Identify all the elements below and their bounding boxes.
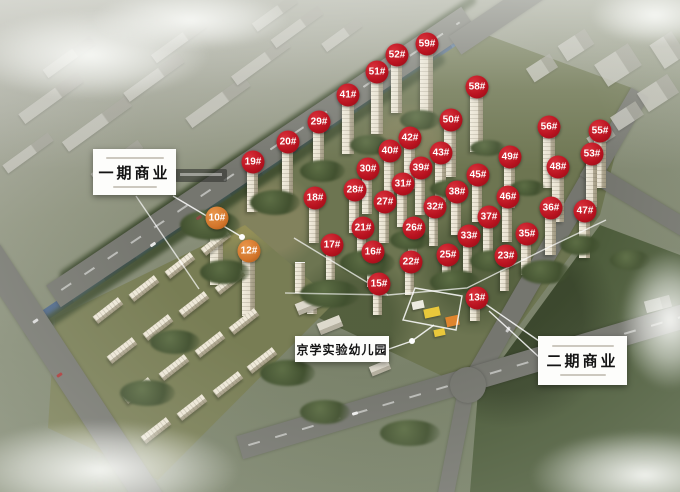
building-marker-23[interactable]: 23# bbox=[495, 245, 518, 268]
building-marker-43[interactable]: 43# bbox=[430, 142, 453, 165]
building-marker-15[interactable]: 15# bbox=[368, 273, 391, 296]
building-marker-25[interactable]: 25# bbox=[437, 244, 460, 267]
callout-label: 二期商业 bbox=[546, 350, 618, 371]
building-marker-21[interactable]: 21# bbox=[352, 217, 375, 240]
callout-phase2-commercial[interactable]: 二期商业 bbox=[538, 336, 627, 385]
callout-label: 京学实验幼儿园 bbox=[296, 341, 387, 358]
building-marker-22[interactable]: 22# bbox=[400, 251, 423, 274]
building-marker-46[interactable]: 46# bbox=[497, 186, 520, 209]
building-marker-17[interactable]: 17# bbox=[321, 234, 344, 257]
building-marker-12[interactable]: 12# bbox=[238, 240, 261, 263]
building-marker-58[interactable]: 58# bbox=[466, 76, 489, 99]
building-marker-18[interactable]: 18# bbox=[304, 187, 327, 210]
building-marker-45[interactable]: 45# bbox=[467, 164, 490, 187]
callout-deco-line bbox=[106, 157, 164, 159]
building-marker-16[interactable]: 16# bbox=[362, 241, 385, 264]
building-marker-28[interactable]: 28# bbox=[344, 179, 367, 202]
building-marker-49[interactable]: 49# bbox=[499, 146, 522, 169]
building-marker-26[interactable]: 26# bbox=[403, 217, 426, 240]
callout-deco-line bbox=[113, 186, 157, 188]
building-marker-38[interactable]: 38# bbox=[446, 181, 469, 204]
building-marker-29[interactable]: 29# bbox=[308, 111, 331, 134]
building-marker-53[interactable]: 53# bbox=[581, 143, 604, 166]
callout-deco-line bbox=[560, 374, 606, 376]
callout-deco-line bbox=[552, 345, 614, 347]
building-marker-41[interactable]: 41# bbox=[337, 84, 360, 107]
building-marker-59[interactable]: 59# bbox=[416, 33, 439, 56]
building-marker-39[interactable]: 39# bbox=[410, 157, 433, 180]
building-marker-40[interactable]: 40# bbox=[379, 140, 402, 163]
building-marker-35[interactable]: 35# bbox=[516, 223, 539, 246]
building-marker-13[interactable]: 13# bbox=[466, 287, 489, 310]
building-marker-19[interactable]: 19# bbox=[242, 151, 265, 174]
building-marker-27[interactable]: 27# bbox=[374, 191, 397, 214]
building-marker-55[interactable]: 55# bbox=[589, 120, 612, 143]
callout-label: 一期商业 bbox=[98, 162, 170, 183]
building-marker-56[interactable]: 56# bbox=[538, 116, 561, 139]
building-marker-10[interactable]: 10# bbox=[206, 207, 229, 230]
building-marker-20[interactable]: 20# bbox=[277, 131, 300, 154]
callout-phase1-commercial[interactable]: 一期商业 bbox=[93, 149, 176, 195]
building-marker-32[interactable]: 32# bbox=[424, 196, 447, 219]
aerial-masterplan-image: 10#12#13#15#16#17#18#19#20#21#22#23#25#2… bbox=[0, 0, 680, 492]
building-marker-42[interactable]: 42# bbox=[399, 127, 422, 150]
building-marker-33[interactable]: 33# bbox=[458, 225, 481, 248]
building-marker-52[interactable]: 52# bbox=[386, 44, 409, 67]
building-marker-37[interactable]: 37# bbox=[478, 206, 501, 229]
building-marker-51[interactable]: 51# bbox=[366, 61, 389, 84]
building-marker-47[interactable]: 47# bbox=[574, 200, 597, 223]
building-marker-31[interactable]: 31# bbox=[392, 173, 415, 196]
building-markers-layer: 10#12#13#15#16#17#18#19#20#21#22#23#25#2… bbox=[0, 0, 680, 492]
building-marker-30[interactable]: 30# bbox=[357, 158, 380, 181]
callout-kindergarten[interactable]: 京学实验幼儿园 bbox=[295, 336, 389, 362]
building-marker-36[interactable]: 36# bbox=[540, 197, 563, 220]
building-marker-50[interactable]: 50# bbox=[440, 109, 463, 132]
building-marker-48[interactable]: 48# bbox=[547, 156, 570, 179]
